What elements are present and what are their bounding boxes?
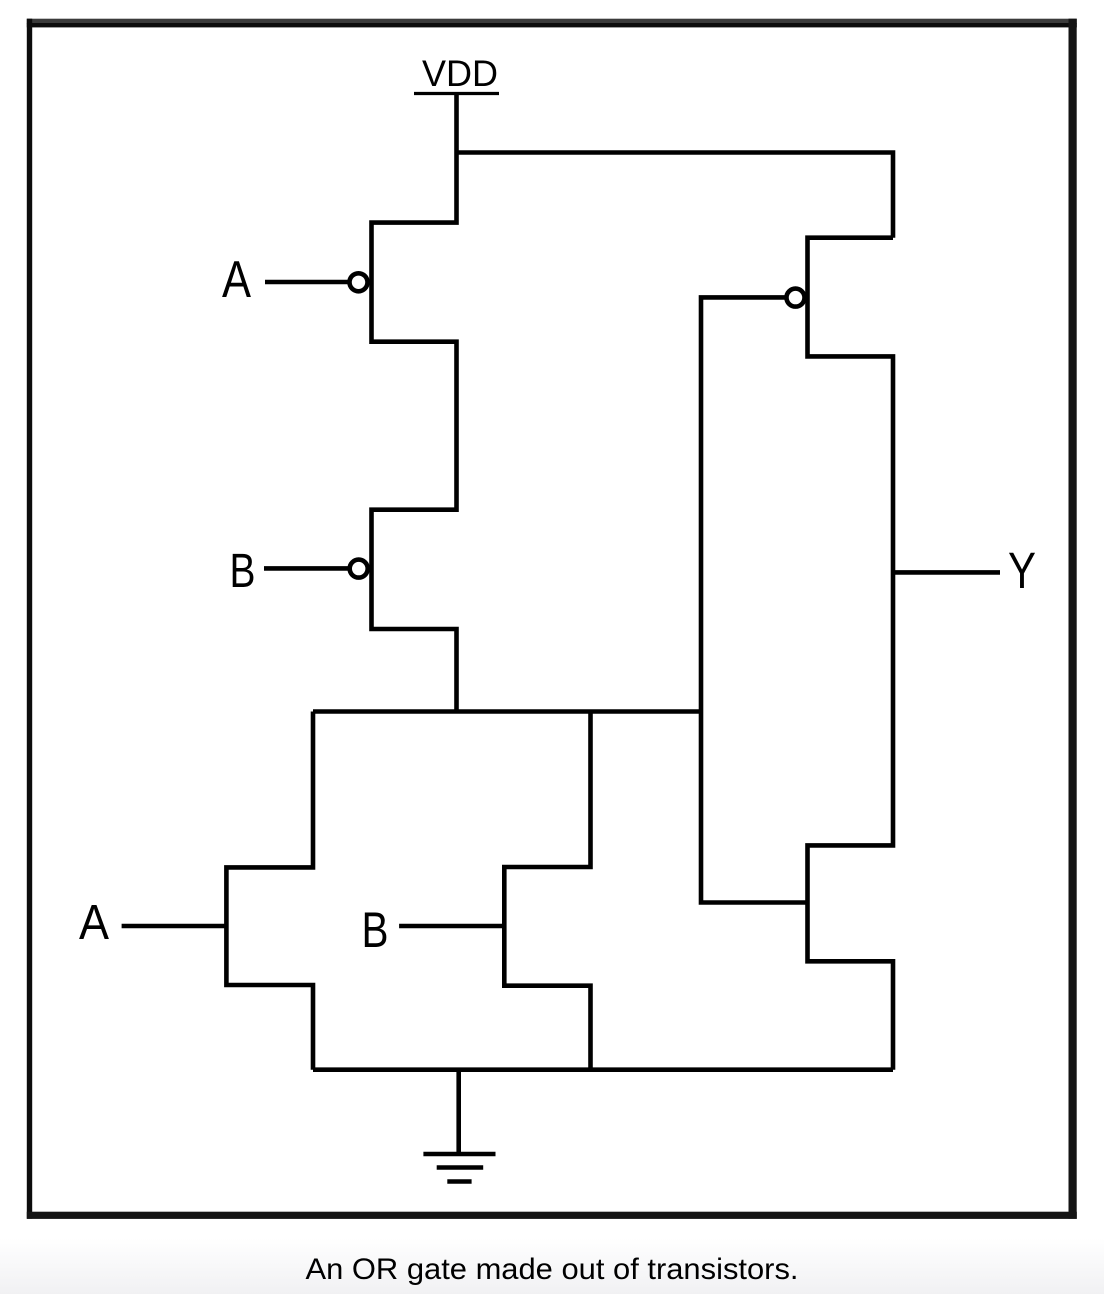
svg-text:B: B (230, 545, 256, 598)
svg-text:A: A (79, 896, 109, 950)
svg-text:Y: Y (1008, 542, 1036, 599)
svg-text:VDD: VDD (422, 53, 498, 94)
svg-text:A: A (222, 251, 251, 309)
svg-text:B: B (362, 902, 389, 958)
svg-text:An OR gate made out of transis: An OR gate made out of transistors. (306, 1253, 799, 1286)
